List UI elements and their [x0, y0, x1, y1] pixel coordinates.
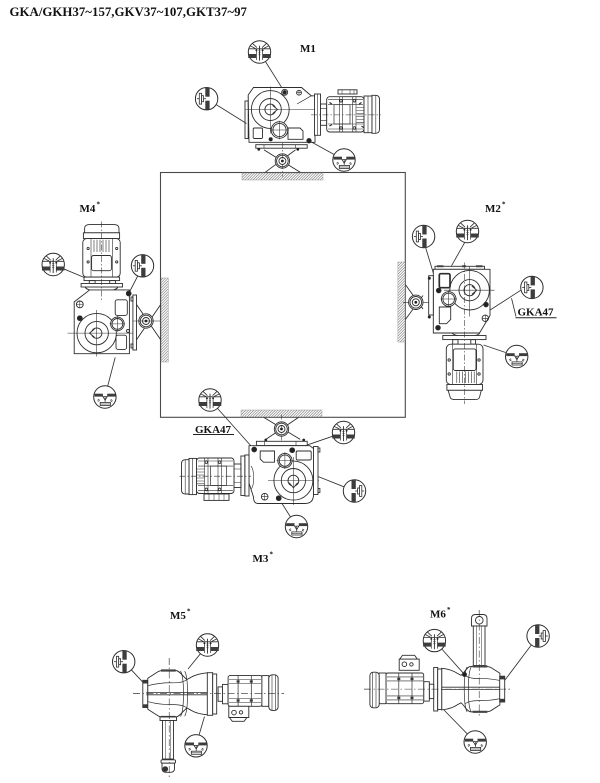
svg-text:M1: M1: [300, 43, 316, 55]
svg-text:M6: M6: [430, 609, 446, 621]
svg-text:*: *: [97, 201, 101, 209]
svg-text:M2: M2: [485, 203, 501, 215]
svg-text:GKA47: GKA47: [518, 307, 555, 319]
svg-text:GKA/GKH37~157,GKV37~107,GKT37~: GKA/GKH37~157,GKV37~107,GKT37~97: [10, 5, 248, 19]
svg-text:*: *: [270, 551, 274, 559]
svg-text:M3: M3: [253, 553, 269, 565]
svg-text:*: *: [187, 608, 191, 616]
svg-text:*: *: [502, 201, 506, 209]
svg-text:*: *: [447, 606, 451, 614]
svg-text:M4: M4: [80, 203, 96, 215]
svg-text:M5: M5: [170, 610, 186, 622]
